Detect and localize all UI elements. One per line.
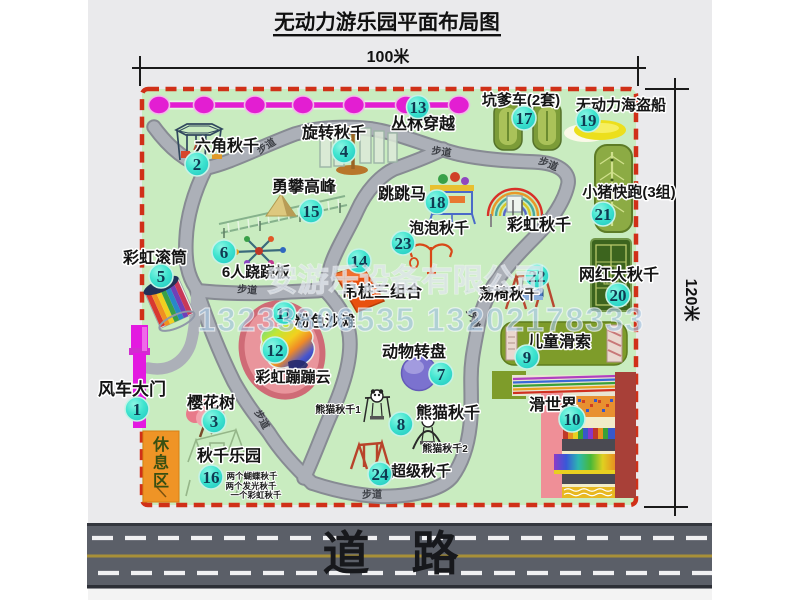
svg-text:16: 16 — [203, 468, 220, 487]
svg-text:12: 12 — [267, 341, 284, 360]
svg-text:6: 6 — [220, 243, 229, 262]
svg-text:彩虹滚筒: 彩虹滚筒 — [122, 248, 187, 267]
svg-text:4: 4 — [340, 142, 349, 161]
svg-text:泡泡秋千: 泡泡秋千 — [409, 219, 469, 237]
svg-text:风车大门: 风车大门 — [98, 379, 166, 399]
svg-text:步道: 步道 — [362, 488, 382, 501]
svg-text:19: 19 — [580, 111, 597, 130]
svg-text:13: 13 — [410, 98, 427, 117]
svg-text:网红大秋千: 网红大秋千 — [579, 265, 659, 284]
svg-text:动物转盘: 动物转盘 — [382, 342, 446, 361]
svg-text:息: 息 — [153, 453, 169, 472]
svg-text:1: 1 — [133, 400, 142, 419]
svg-text:18: 18 — [429, 193, 446, 212]
svg-text:熊猫秋千2: 熊猫秋千2 — [422, 442, 468, 455]
svg-text:熊猫秋千1: 熊猫秋千1 — [315, 403, 361, 416]
svg-text:100米: 100米 — [367, 47, 411, 66]
svg-text:120米: 120米 — [682, 279, 701, 323]
svg-text:小猪快跑(3组): 小猪快跑(3组) — [582, 183, 675, 201]
svg-text:24: 24 — [372, 465, 390, 484]
svg-text:区: 区 — [153, 472, 169, 490]
svg-text:休: 休 — [152, 435, 170, 454]
svg-text:道: 道 — [323, 527, 370, 580]
svg-text:旋转秋千: 旋转秋千 — [301, 123, 366, 142]
svg-text:8: 8 — [397, 415, 406, 434]
svg-text:彩虹秋千: 彩虹秋千 — [506, 215, 571, 234]
svg-text:9: 9 — [523, 348, 532, 367]
svg-text:7: 7 — [437, 365, 446, 384]
svg-text:六角秋千: 六角秋千 — [195, 136, 259, 155]
svg-text:2: 2 — [193, 155, 202, 174]
svg-text:15: 15 — [303, 202, 320, 221]
svg-text:23: 23 — [395, 234, 412, 253]
svg-text:路: 路 — [412, 527, 460, 580]
svg-text:13233806535 13202178333: 13233806535 13202178333 — [197, 301, 644, 338]
svg-text:17: 17 — [516, 109, 534, 128]
svg-text:21: 21 — [595, 205, 612, 224]
svg-text:秋千乐园: 秋千乐园 — [197, 446, 261, 465]
svg-text:一个彩虹秋千: 一个彩虹秋千 — [230, 490, 282, 500]
svg-text:彩虹蹦蹦云: 彩虹蹦蹦云 — [254, 368, 330, 386]
svg-text:两个蝴蝶秋千: 两个蝴蝶秋千 — [226, 471, 278, 481]
svg-text:无动力游乐园平面布局图: 无动力游乐园平面布局图 — [274, 10, 500, 34]
svg-text:3: 3 — [210, 412, 219, 431]
svg-text:10: 10 — [564, 410, 581, 429]
svg-text:安游乐设备有限公司: 安游乐设备有限公司 — [267, 263, 546, 298]
svg-text:勇攀高峰: 勇攀高峰 — [272, 177, 337, 196]
svg-text:熊猫秋千: 熊猫秋千 — [416, 403, 480, 422]
svg-text:跳跳马: 跳跳马 — [378, 184, 426, 203]
svg-text:超级秋千: 超级秋千 — [390, 462, 451, 480]
svg-text:5: 5 — [157, 267, 166, 286]
